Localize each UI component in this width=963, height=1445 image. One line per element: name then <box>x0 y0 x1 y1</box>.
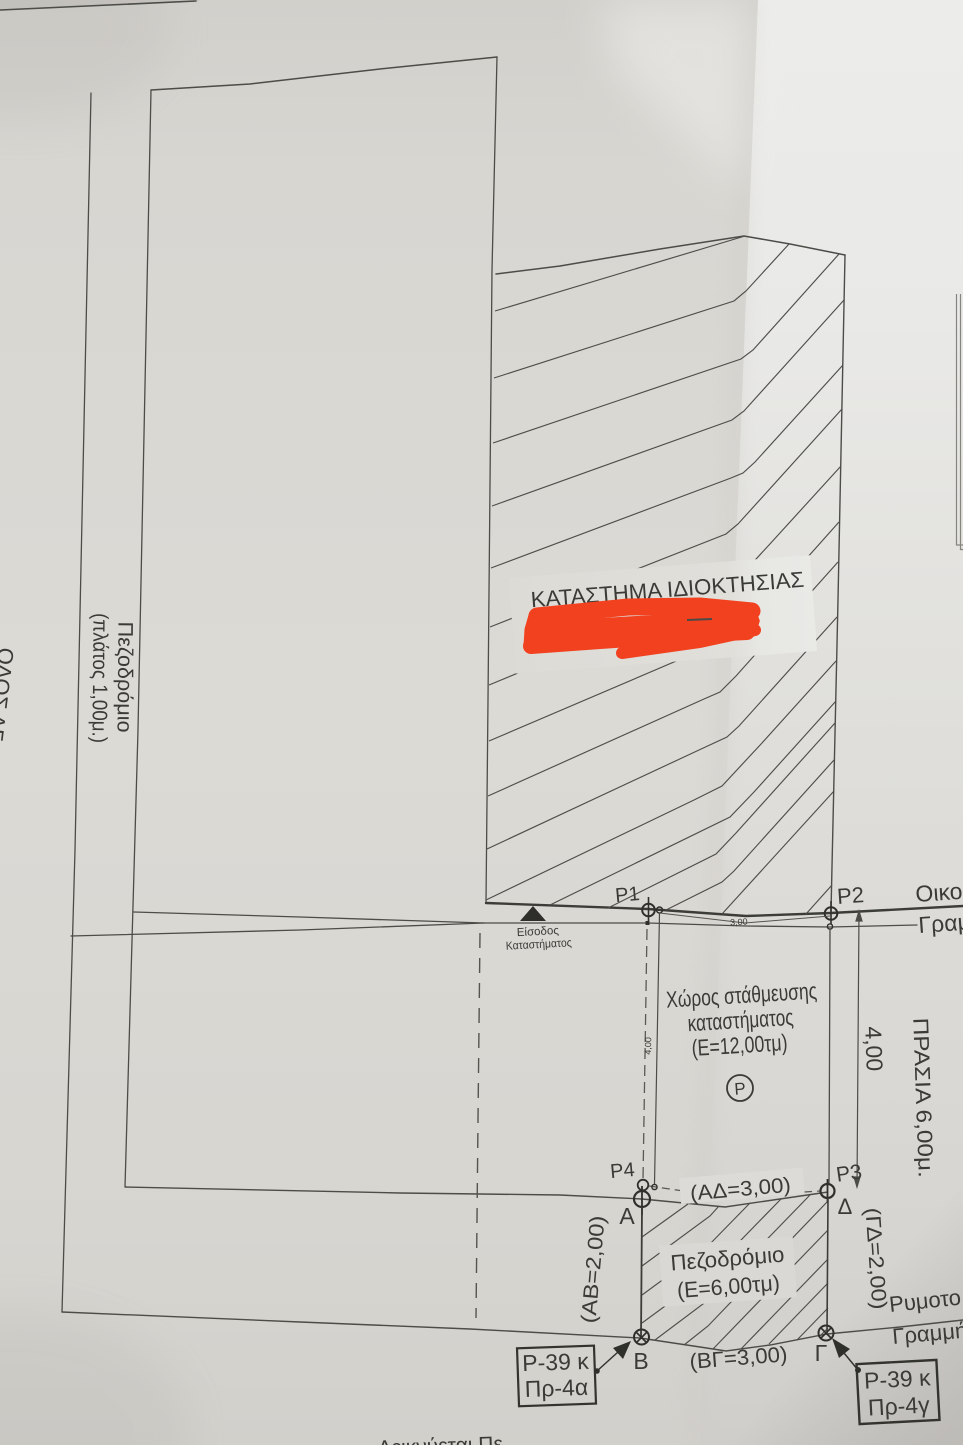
svg-text:Πρ-4γ: Πρ-4γ <box>867 1391 930 1420</box>
svg-text:P2: P2 <box>836 882 865 909</box>
svg-text:4,00: 4,00 <box>860 1026 888 1072</box>
svg-text:3,00: 3,00 <box>730 917 748 928</box>
svg-text:B: B <box>633 1348 648 1374</box>
svg-text:(πλάτος 1,00μ.): (πλάτος 1,00μ.) <box>87 613 111 743</box>
svg-text:Ρ-39 κ: Ρ-39 κ <box>522 1348 590 1376</box>
svg-text:Ρ-39 κ: Ρ-39 κ <box>863 1364 931 1393</box>
svg-text:Οικοδ: Οικοδ <box>915 877 963 907</box>
svg-text:Γ: Γ <box>815 1340 828 1366</box>
svg-text:4,00: 4,00 <box>643 1037 654 1055</box>
svg-text:Πεζοδρόμιο: Πεζοδρόμιο <box>113 621 137 732</box>
svg-text:Γραμμ: Γραμμ <box>918 907 963 938</box>
svg-text:Είσοδος: Είσοδος <box>517 925 560 939</box>
svg-text:P1: P1 <box>614 883 640 907</box>
svg-text:P: P <box>734 1079 747 1099</box>
svg-text:P3: P3 <box>835 1160 864 1186</box>
svg-text:P4: P4 <box>609 1159 635 1183</box>
svg-text:A: A <box>619 1203 635 1229</box>
svg-text:Δ: Δ <box>838 1194 853 1219</box>
svg-text:Πρ-4α: Πρ-4α <box>524 1374 588 1402</box>
